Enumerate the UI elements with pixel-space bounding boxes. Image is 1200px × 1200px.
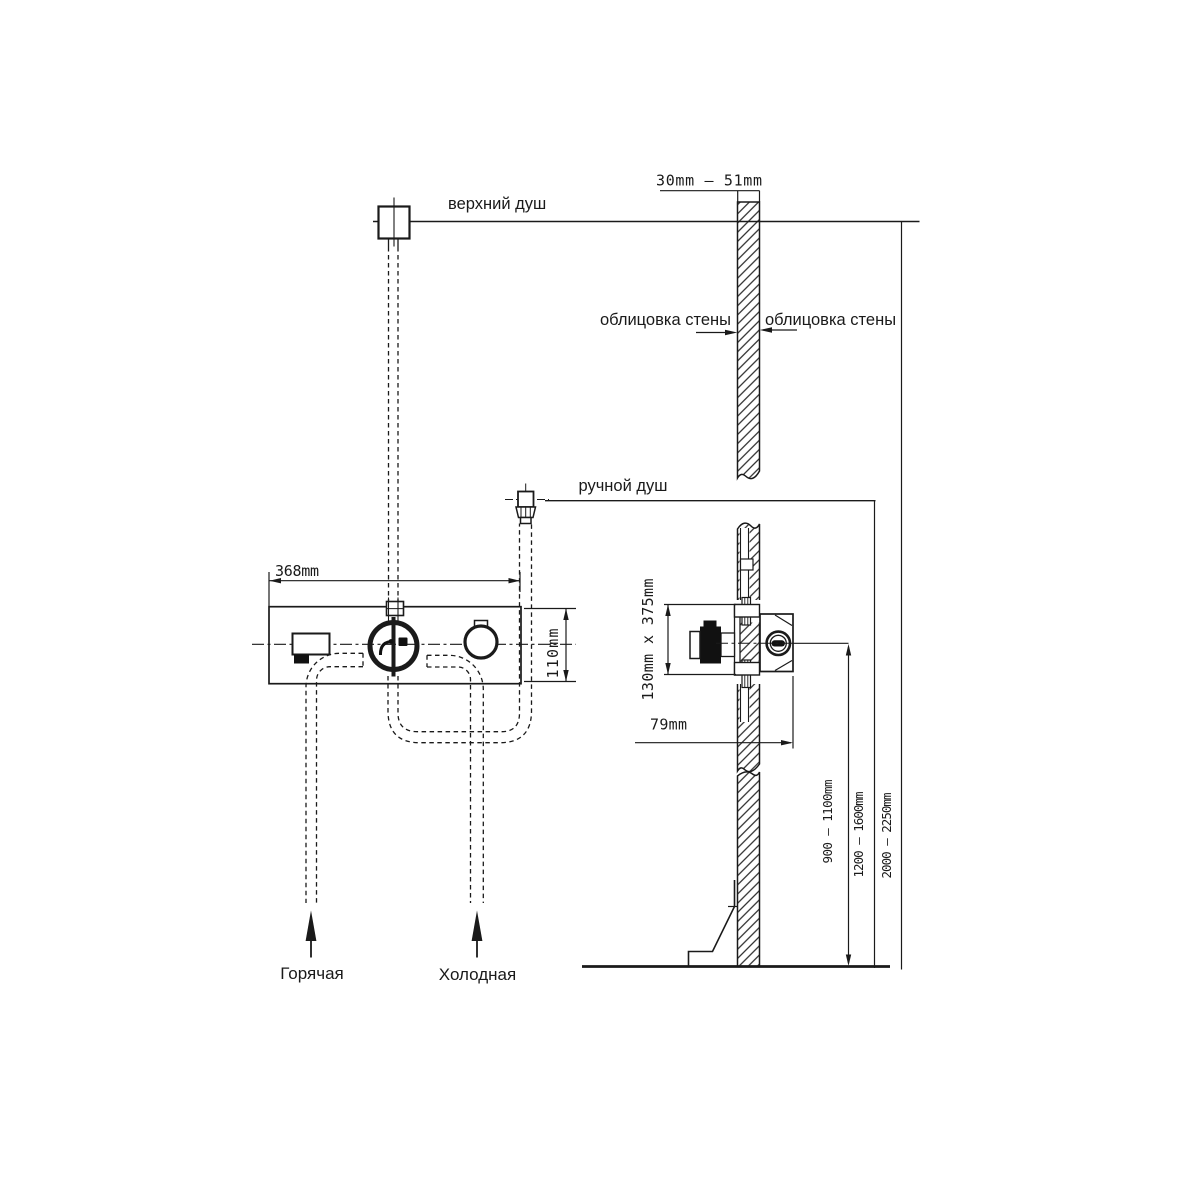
upper-shower-outlet [379,198,410,248]
wall-cladding-right-label: облицовка стены [765,311,896,329]
hot-water-pipe [306,653,363,903]
cold-water-pipe [427,655,483,903]
cold-supply-label: Холодная [439,965,516,984]
shower-tray-profile [689,880,738,966]
wall-cladding-left-arrow [696,330,737,335]
panel-width-label: 368mm [275,562,319,580]
hand-shower-height-label: 1200 — 1600mm [851,792,866,878]
cold-supply-arrow [472,911,483,958]
panel-height-label: 110mm [544,629,562,679]
rough-in-label: 130mm x 375mm [639,579,657,701]
square-icon [399,638,408,647]
wall-cladding-left-label: облицовка стены [600,311,731,329]
riser-pipe [389,247,399,601]
in-wall-pipe-channel-lower [740,684,750,722]
installation-diagram: 30mm — 51mm верхний душ облицовка стены … [0,0,1200,1200]
hot-supply-label: Горячая [280,964,344,983]
shower-spout-icon-tip [389,639,394,644]
trim-plate-side [760,614,793,672]
depth-dimension [635,676,793,749]
upper-shower-label: верхний душ [448,195,546,213]
mixer-height-label: 900 — 1100mm [820,780,835,864]
wall-thickness-dimension [660,191,760,202]
hand-shower-outlet [505,484,549,524]
wall-thickness-label: 30mm — 51mm [656,172,762,190]
depth-label: 79mm [650,716,687,734]
diagram-canvas: 30mm — 51mm верхний душ облицовка стены … [0,0,1200,1200]
hot-supply-arrow [306,911,317,958]
head-shower-height-label: 2000 — 2250mm [879,793,894,879]
hand-shower-label: ручной душ [578,477,667,495]
